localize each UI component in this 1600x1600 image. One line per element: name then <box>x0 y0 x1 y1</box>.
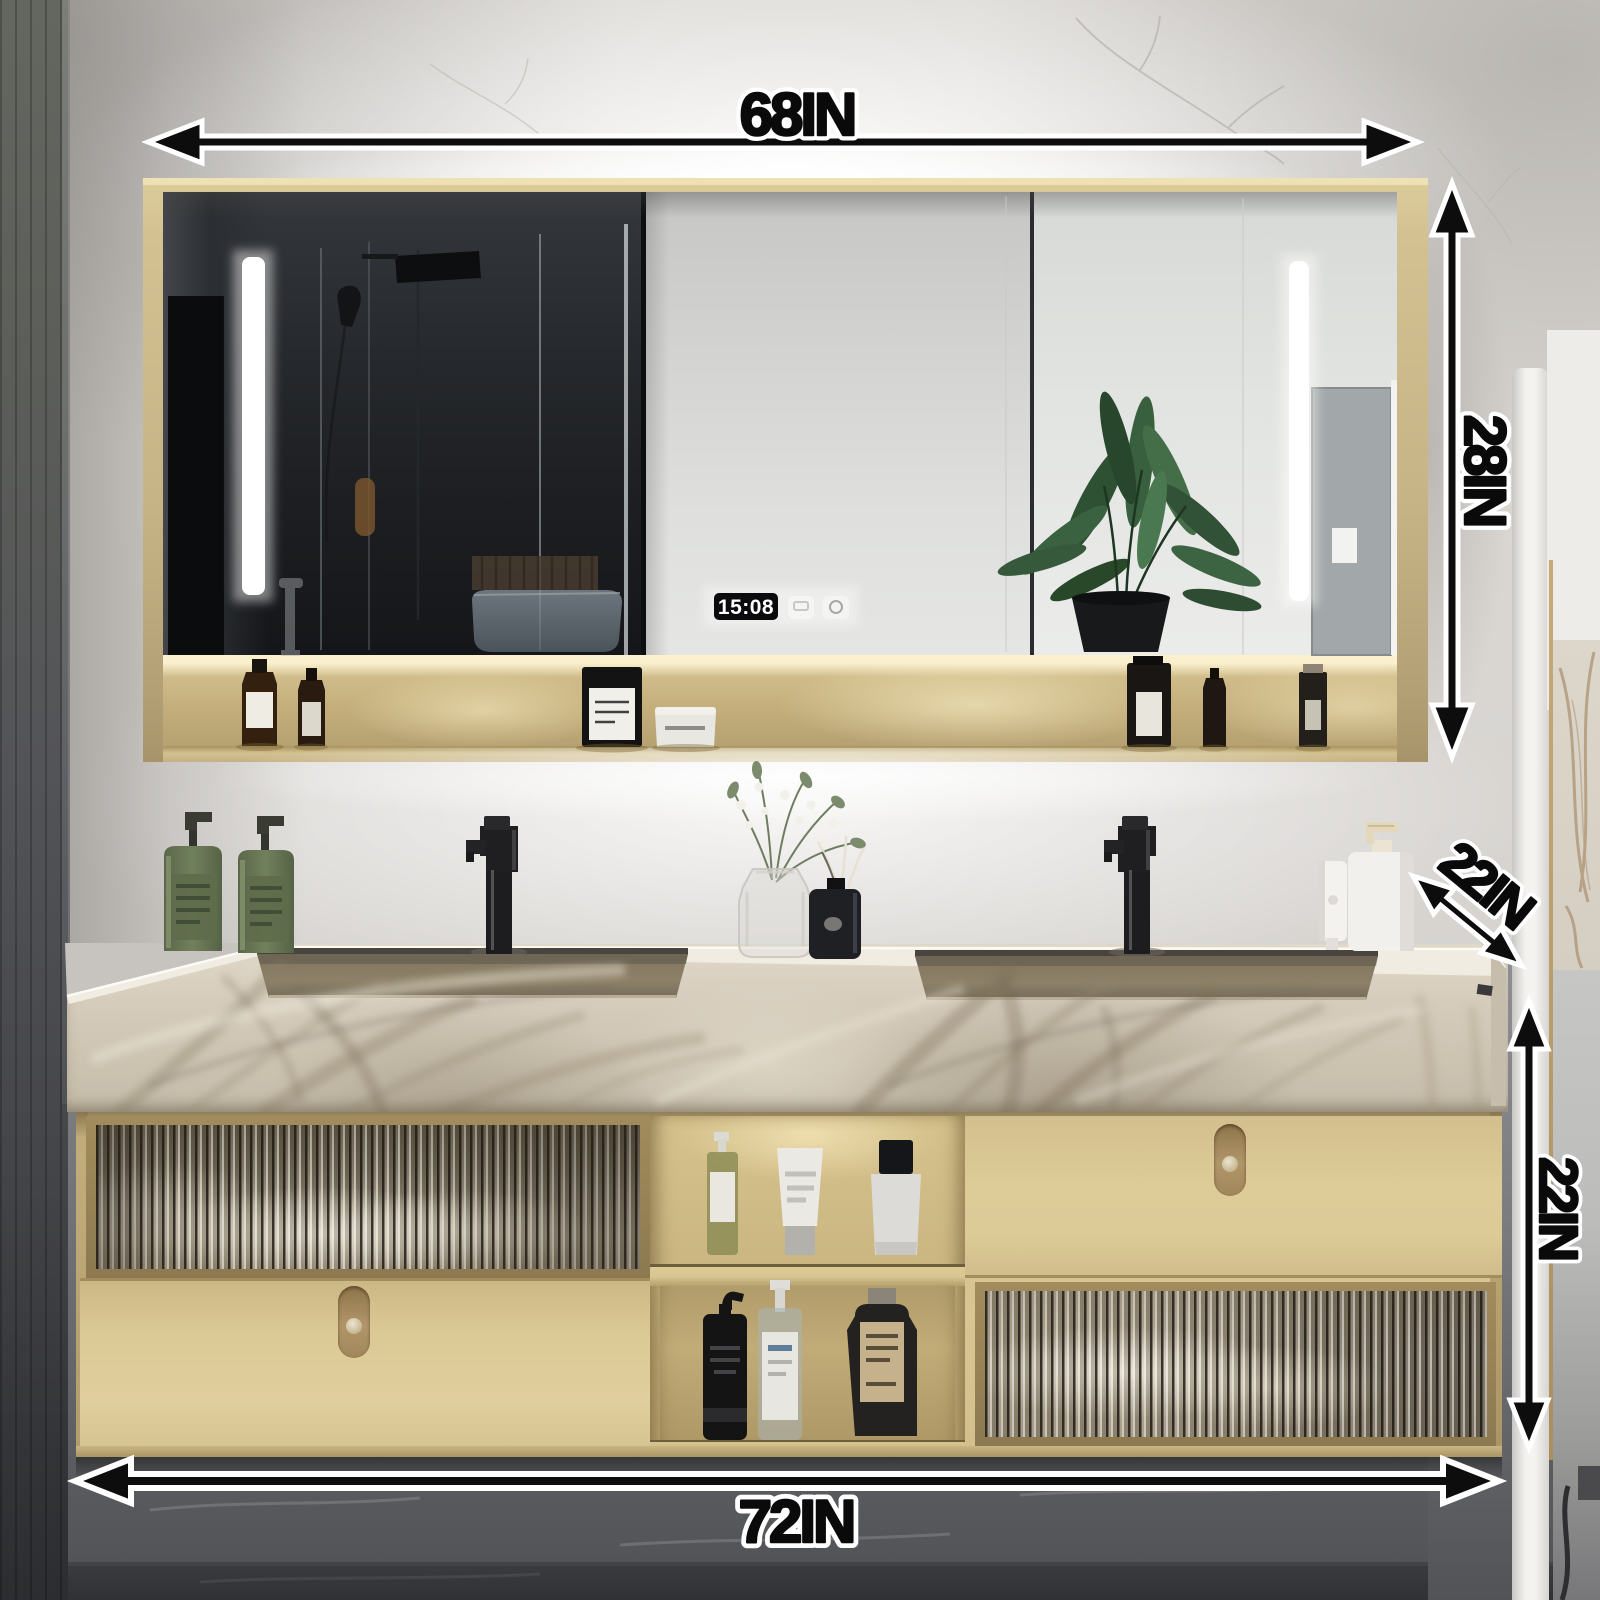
svg-text:68IN: 68IN <box>740 81 855 148</box>
svg-text:28IN: 28IN <box>1452 415 1517 526</box>
svg-text:72IN: 72IN <box>739 1488 854 1555</box>
svg-text:22IN: 22IN <box>1528 1157 1588 1259</box>
svg-text:22IN: 22IN <box>1429 831 1544 940</box>
